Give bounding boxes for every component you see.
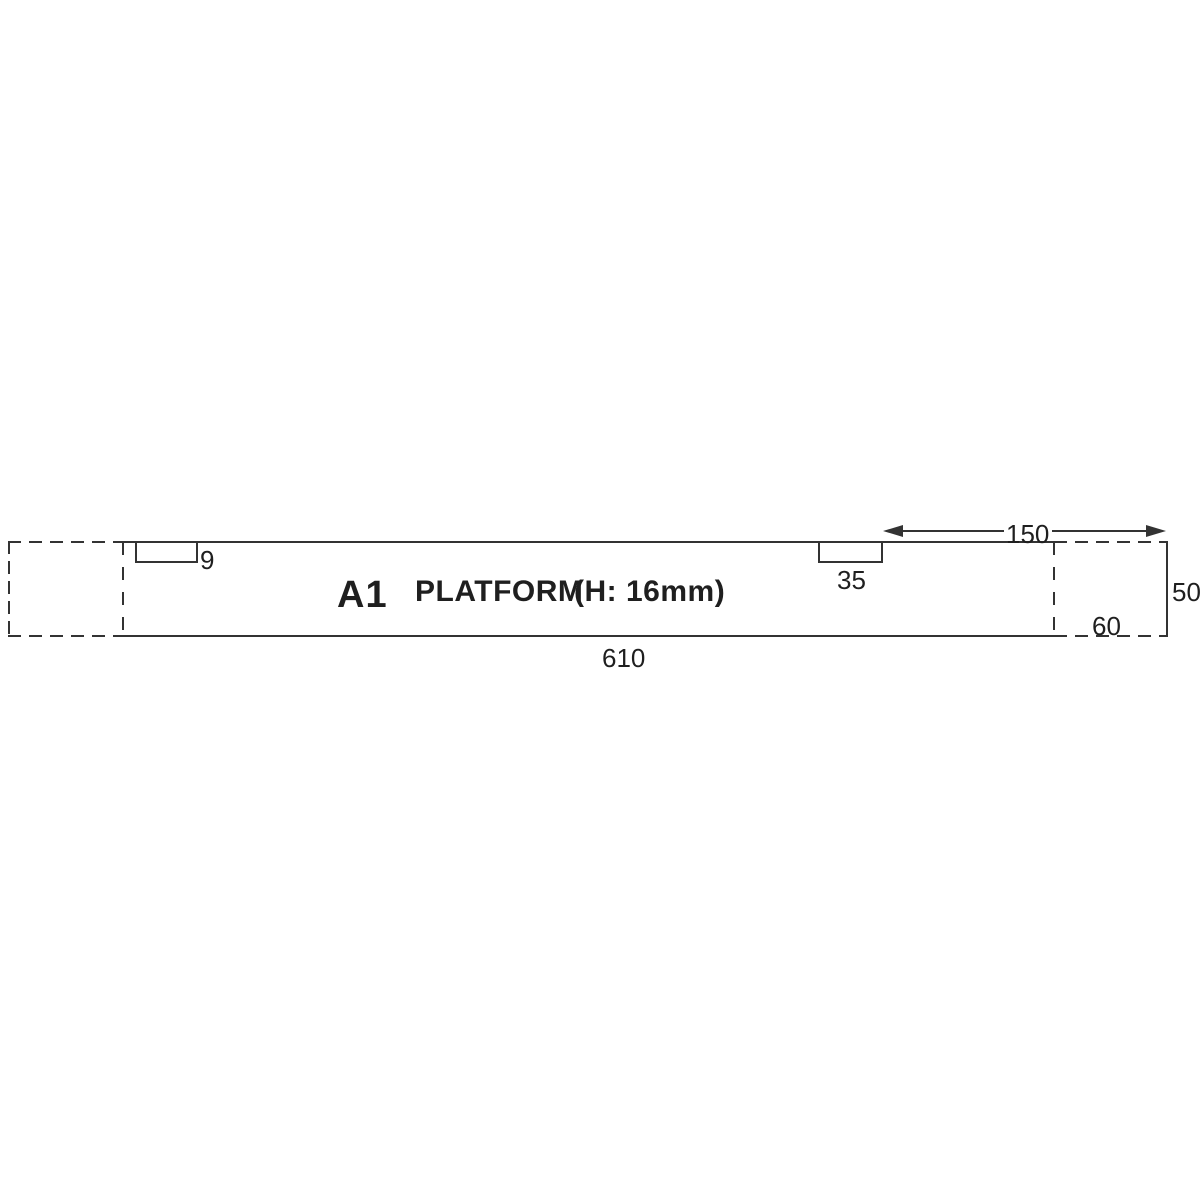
part-name-label: PLATFORM — [415, 577, 583, 607]
right-notch-tab — [818, 541, 883, 563]
dim-150-line-left — [900, 530, 1004, 532]
dim-150-arrow-right-icon — [1146, 525, 1166, 537]
height-50-label: 50 — [1172, 579, 1200, 605]
length-610-label: 610 — [602, 645, 645, 671]
outline-right-edge-solid — [1166, 541, 1168, 637]
part-height-note-label: (H: 16mm) — [574, 577, 725, 607]
end-section-60-label: 60 — [1092, 613, 1121, 639]
outline-left-edge-dashed — [8, 541, 10, 637]
outline-bottom-solid — [122, 635, 1054, 637]
right-section-line-dashed — [1053, 542, 1055, 636]
notch-9-label: 9 — [200, 547, 214, 573]
outline-top-left-dashed — [8, 541, 122, 543]
left-notch-tab — [135, 541, 198, 563]
outline-bottom-left-dashed — [8, 635, 122, 637]
outline-top-solid — [122, 541, 1054, 543]
dim-150-label: 150 — [1006, 521, 1049, 547]
outline-top-right-dashed — [1054, 541, 1168, 543]
dim-150-line-right — [1052, 530, 1150, 532]
left-cut-line-dashed — [122, 542, 124, 636]
notch-35-label: 35 — [837, 567, 866, 593]
part-code-label: A1 — [337, 576, 388, 614]
technical-drawing-canvas: 150 9 35 50 60 610 A1 PLATFORM (H: 16mm) — [0, 0, 1200, 1200]
